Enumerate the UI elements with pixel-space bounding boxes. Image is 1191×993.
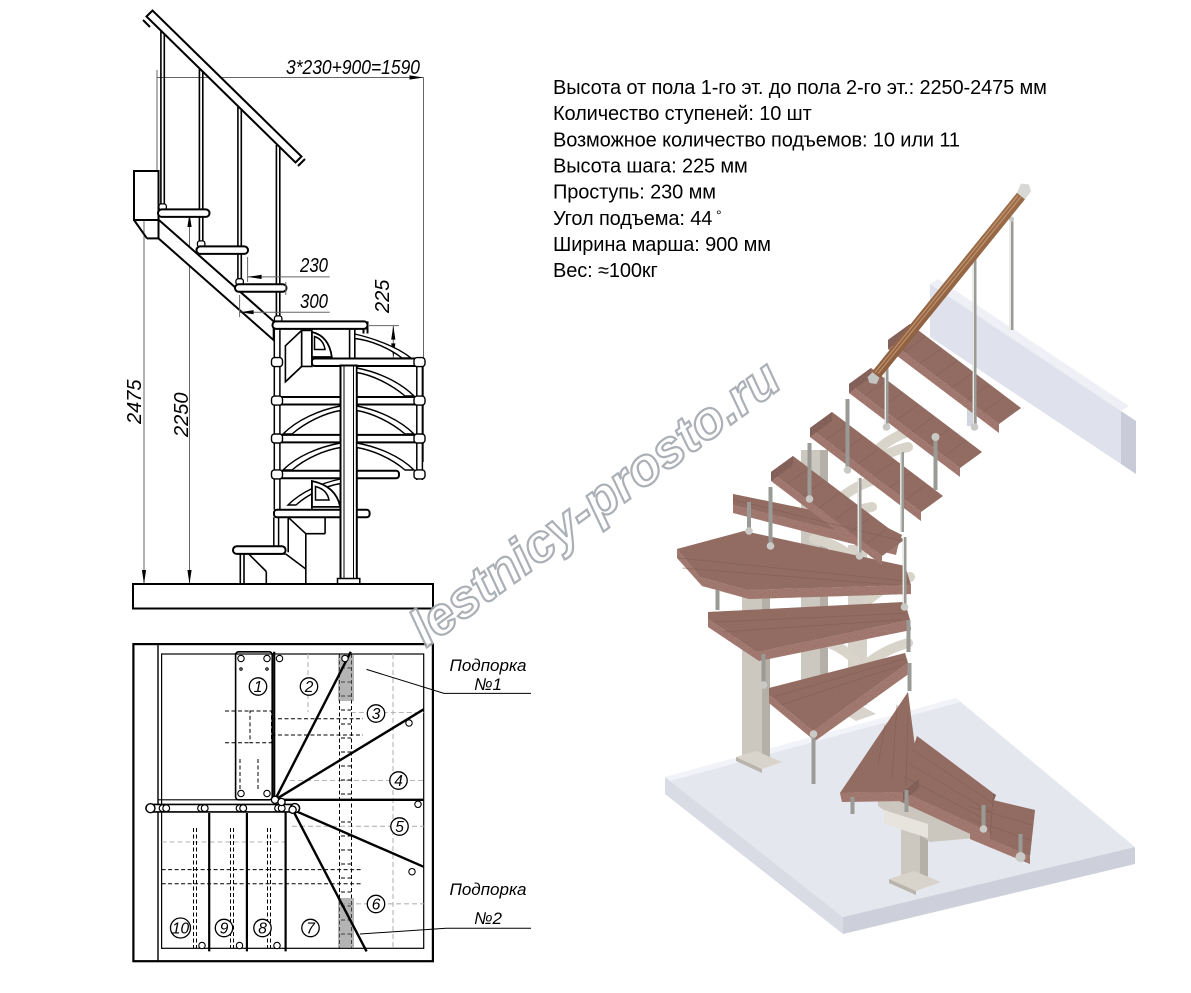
svg-text:Вес: ≈100кг: Вес: ≈100кг <box>553 260 658 282</box>
svg-text:225: 225 <box>372 279 394 314</box>
svg-text:Количество ступеней: 10 шт: Количество ступеней: 10 шт <box>553 103 812 125</box>
svg-text:5: 5 <box>395 819 404 836</box>
svg-text:Высота шага: 225 мм: Высота шага: 225 мм <box>553 156 748 178</box>
svg-text:1: 1 <box>254 679 263 696</box>
svg-text:3*230+900=1590: 3*230+900=1590 <box>286 57 420 79</box>
svg-text:10: 10 <box>172 921 190 938</box>
svg-text:Угол подъема: 44 °: Угол подъема: 44 ° <box>553 207 722 230</box>
svg-text:6: 6 <box>372 897 381 914</box>
svg-text:230: 230 <box>299 255 328 277</box>
svg-text:300: 300 <box>300 291 328 313</box>
svg-text:2475: 2475 <box>124 379 146 425</box>
svg-text:2: 2 <box>304 679 314 696</box>
svg-text:№1: №1 <box>474 675 502 694</box>
svg-text:8: 8 <box>258 921 267 938</box>
svg-text:2250: 2250 <box>171 393 193 439</box>
svg-text:Высота от пола 1-го эт. до пол: Высота от пола 1-го эт. до пола 2-го эт.… <box>553 77 1047 99</box>
svg-text:7: 7 <box>306 921 316 938</box>
svg-text:Возможное количество подъемов:: Возможное количество подъемов: 10 или 11 <box>553 130 960 152</box>
svg-text:Подпорка: Подпорка <box>450 656 527 675</box>
svg-text:Подпорка: Подпорка <box>450 880 527 899</box>
svg-text:Ширина марша: 900 мм: Ширина марша: 900 мм <box>553 234 771 256</box>
svg-text:Проступь: 230 мм: Проступь: 230 мм <box>553 182 716 204</box>
svg-text:4: 4 <box>394 773 403 790</box>
svg-text:9: 9 <box>220 921 229 938</box>
svg-text:3: 3 <box>372 706 381 723</box>
svg-text:№2: №2 <box>474 909 502 928</box>
